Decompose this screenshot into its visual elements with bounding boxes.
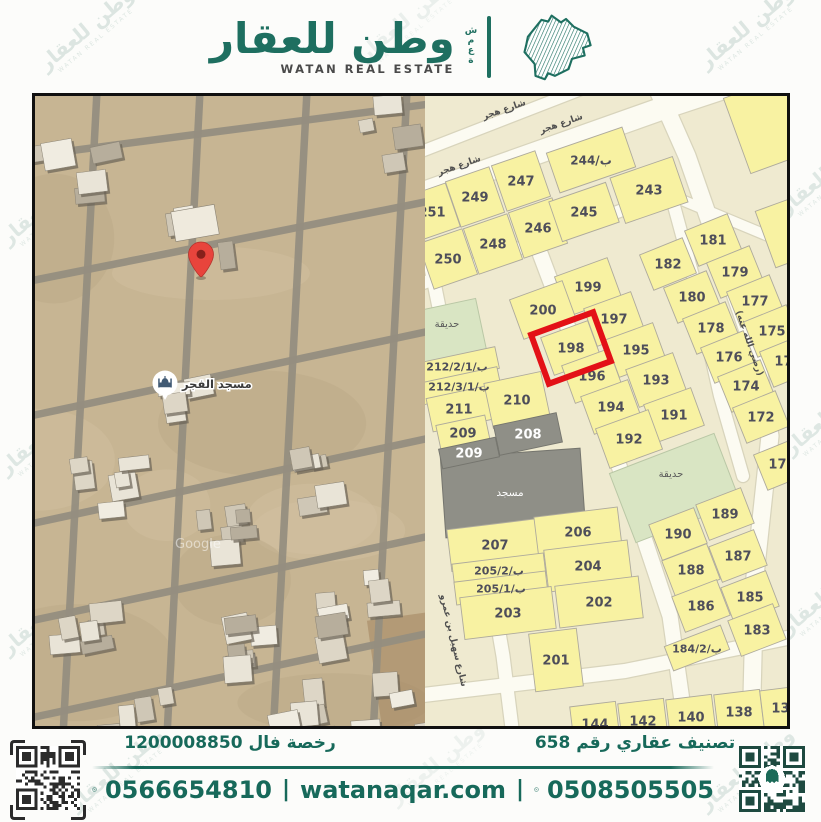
building bbox=[315, 481, 348, 508]
parcel-label-203: 203 bbox=[494, 607, 521, 622]
building bbox=[223, 655, 252, 684]
poi-label: مسجد الفجر bbox=[181, 377, 252, 391]
parcel-label-208: 208 bbox=[514, 428, 541, 443]
parcel-label-136: 136 bbox=[771, 702, 787, 717]
brand-logo: وطن للعقار WATAN REAL ESTATE bbox=[210, 17, 455, 76]
building bbox=[158, 687, 175, 706]
map-panel: Googleمسجد الفجر حديقةحديقةمسجد251249247… bbox=[32, 93, 790, 729]
parcel-label-204: 204 bbox=[574, 560, 601, 575]
parcel-label-251: 251 bbox=[425, 206, 446, 221]
separator: | bbox=[514, 777, 526, 802]
building bbox=[98, 501, 125, 519]
brand-name-english: WATAN REAL ESTATE bbox=[210, 62, 455, 76]
contact-row: 0566654810 | watanaqar.com | 0508505505 bbox=[92, 775, 714, 804]
logo-divider-bar bbox=[487, 16, 491, 78]
building bbox=[79, 620, 99, 642]
parcel-label-170: 170 bbox=[768, 458, 787, 473]
satellite-map: Googleمسجد الفجر bbox=[35, 96, 425, 726]
parcel-label-198: 198 bbox=[557, 342, 584, 357]
garden-label: حديقة bbox=[435, 319, 460, 330]
parcel-label-177: 177 bbox=[741, 295, 768, 310]
parcel-label-186: 186 bbox=[687, 600, 714, 615]
building bbox=[218, 241, 236, 270]
parcel-label-144: 144 bbox=[581, 718, 608, 727]
parcel-label-193: 193 bbox=[642, 374, 669, 389]
parcel-label-184/2/ب: 184/2/ب bbox=[672, 643, 722, 656]
parcel-label-211: 211 bbox=[445, 403, 472, 418]
parcel-label-173: 173 bbox=[774, 355, 787, 370]
parcel-label-250: 250 bbox=[434, 253, 461, 268]
saudi-map-logo-icon bbox=[499, 8, 611, 86]
qr-corner-bracket bbox=[71, 740, 86, 755]
parcel-label-172: 172 bbox=[747, 411, 774, 426]
building bbox=[392, 124, 423, 150]
logo-letter: م bbox=[468, 37, 475, 46]
whatsapp-icon bbox=[534, 775, 539, 804]
qr-corner-bracket bbox=[71, 805, 86, 820]
brand-name-arabic: وطن للعقار bbox=[210, 17, 455, 61]
parcel-label-140: 140 bbox=[677, 711, 704, 726]
parcel-label-244/ب: 244/ب bbox=[570, 154, 612, 168]
parcel-label-206: 206 bbox=[564, 526, 591, 541]
building bbox=[373, 96, 403, 116]
parcel-label-247: 247 bbox=[507, 175, 534, 190]
qr-code-snapchat bbox=[739, 746, 805, 816]
map-attribution: Google bbox=[175, 537, 221, 552]
separator: | bbox=[280, 777, 292, 802]
qr-corner-bracket bbox=[10, 740, 25, 755]
parcel-label-249: 249 bbox=[461, 191, 488, 206]
parcel-label-138: 138 bbox=[725, 706, 752, 721]
building bbox=[236, 509, 251, 523]
parcel-label-202: 202 bbox=[585, 596, 612, 611]
building bbox=[196, 509, 212, 530]
parcel-label-176: 176 bbox=[715, 351, 742, 366]
building bbox=[76, 169, 108, 194]
footer: رخصة فال 1200008850 تصنيف عقاري رقم 658 … bbox=[0, 729, 821, 822]
building bbox=[41, 138, 76, 171]
building bbox=[134, 696, 155, 722]
phone-primary: 0566654810 bbox=[105, 776, 272, 804]
building bbox=[58, 615, 79, 640]
parcel-label-201: 201 bbox=[542, 654, 569, 669]
parcel-label-191: 191 bbox=[660, 409, 687, 424]
logo-letter: ع bbox=[468, 47, 474, 56]
parcel-label-190: 190 bbox=[664, 528, 691, 543]
parcel-label-195: 195 bbox=[622, 344, 649, 359]
parcel-label-174: 174 bbox=[732, 380, 759, 395]
classification-number: تصنيف عقاري رقم 658 bbox=[490, 733, 780, 753]
parcel-label-209: 209 bbox=[449, 427, 476, 442]
mosque-label: مسجد bbox=[496, 487, 523, 499]
parcel-label-189: 189 bbox=[711, 508, 738, 523]
logo-vertical-text: شمعة bbox=[465, 27, 477, 66]
fal-license: رخصة فال 1200008850 bbox=[100, 733, 360, 753]
phone-secondary: 0508505505 bbox=[547, 776, 714, 804]
parcel-label-192: 192 bbox=[615, 433, 642, 448]
building bbox=[368, 579, 390, 604]
building bbox=[289, 447, 312, 471]
building bbox=[230, 525, 257, 540]
footer-divider bbox=[92, 766, 714, 769]
parcel-label-199: 199 bbox=[574, 281, 601, 296]
parcel-label-212/3/1/ب: 212/3/1/ب bbox=[428, 381, 489, 394]
building bbox=[382, 152, 406, 173]
parcel-label-205/1/ب: 205/1/ب bbox=[476, 583, 526, 596]
building bbox=[69, 457, 89, 474]
whatsapp-icon bbox=[92, 775, 97, 804]
parcel-label-209: 209 bbox=[455, 447, 482, 462]
qr-corner-bracket bbox=[10, 805, 25, 820]
parcel-label-185: 185 bbox=[736, 591, 763, 606]
parcel-label-246: 246 bbox=[524, 222, 551, 237]
building bbox=[315, 612, 348, 639]
garden-label: حديقة bbox=[659, 469, 684, 480]
parcel-label-179: 179 bbox=[721, 266, 748, 281]
parcel-label-194: 194 bbox=[597, 401, 624, 416]
logo-letter: ة bbox=[468, 57, 473, 66]
parcel-label-181: 181 bbox=[699, 234, 726, 249]
building bbox=[358, 118, 375, 133]
parcel-label-248: 248 bbox=[479, 238, 506, 253]
parcel-label-188: 188 bbox=[677, 564, 704, 579]
parcel-label-243: 243 bbox=[635, 184, 662, 199]
website: watanaqar.com bbox=[300, 776, 506, 804]
parcel-label-212/2/1/ب: 212/2/1/ب bbox=[426, 361, 487, 374]
parcel-label-175: 175 bbox=[758, 325, 785, 340]
parcel-label-187: 187 bbox=[724, 550, 751, 565]
parcel-label-183: 183 bbox=[743, 624, 770, 639]
parcel-label-197: 197 bbox=[600, 313, 627, 328]
parcel-label-182: 182 bbox=[654, 258, 681, 273]
parcel-label-142: 142 bbox=[629, 715, 656, 727]
building bbox=[118, 704, 136, 726]
logo-letter: ش bbox=[465, 27, 477, 36]
parcel-label-178: 178 bbox=[697, 322, 724, 337]
parcel-label-245: 245 bbox=[570, 206, 597, 221]
header: وطن للعقار WATAN REAL ESTATE شمعة bbox=[0, 0, 821, 93]
parcel-label-207: 207 bbox=[481, 539, 508, 554]
snapchat-ghost-icon bbox=[766, 769, 779, 783]
parcel-label-180: 180 bbox=[678, 291, 705, 306]
building bbox=[224, 615, 257, 635]
parcel-label-200: 200 bbox=[529, 304, 556, 319]
parcel-label-210: 210 bbox=[503, 394, 530, 409]
parcel-plan-map: حديقةحديقةمسجد251249247244/ب250248246245… bbox=[425, 96, 787, 726]
qr-code-left bbox=[16, 746, 80, 814]
parcel-label-205/2/ب: 205/2/ب bbox=[474, 565, 524, 578]
flyer-page: { "brand": { "logo_arabic": "وطن للعقار"… bbox=[0, 0, 821, 822]
